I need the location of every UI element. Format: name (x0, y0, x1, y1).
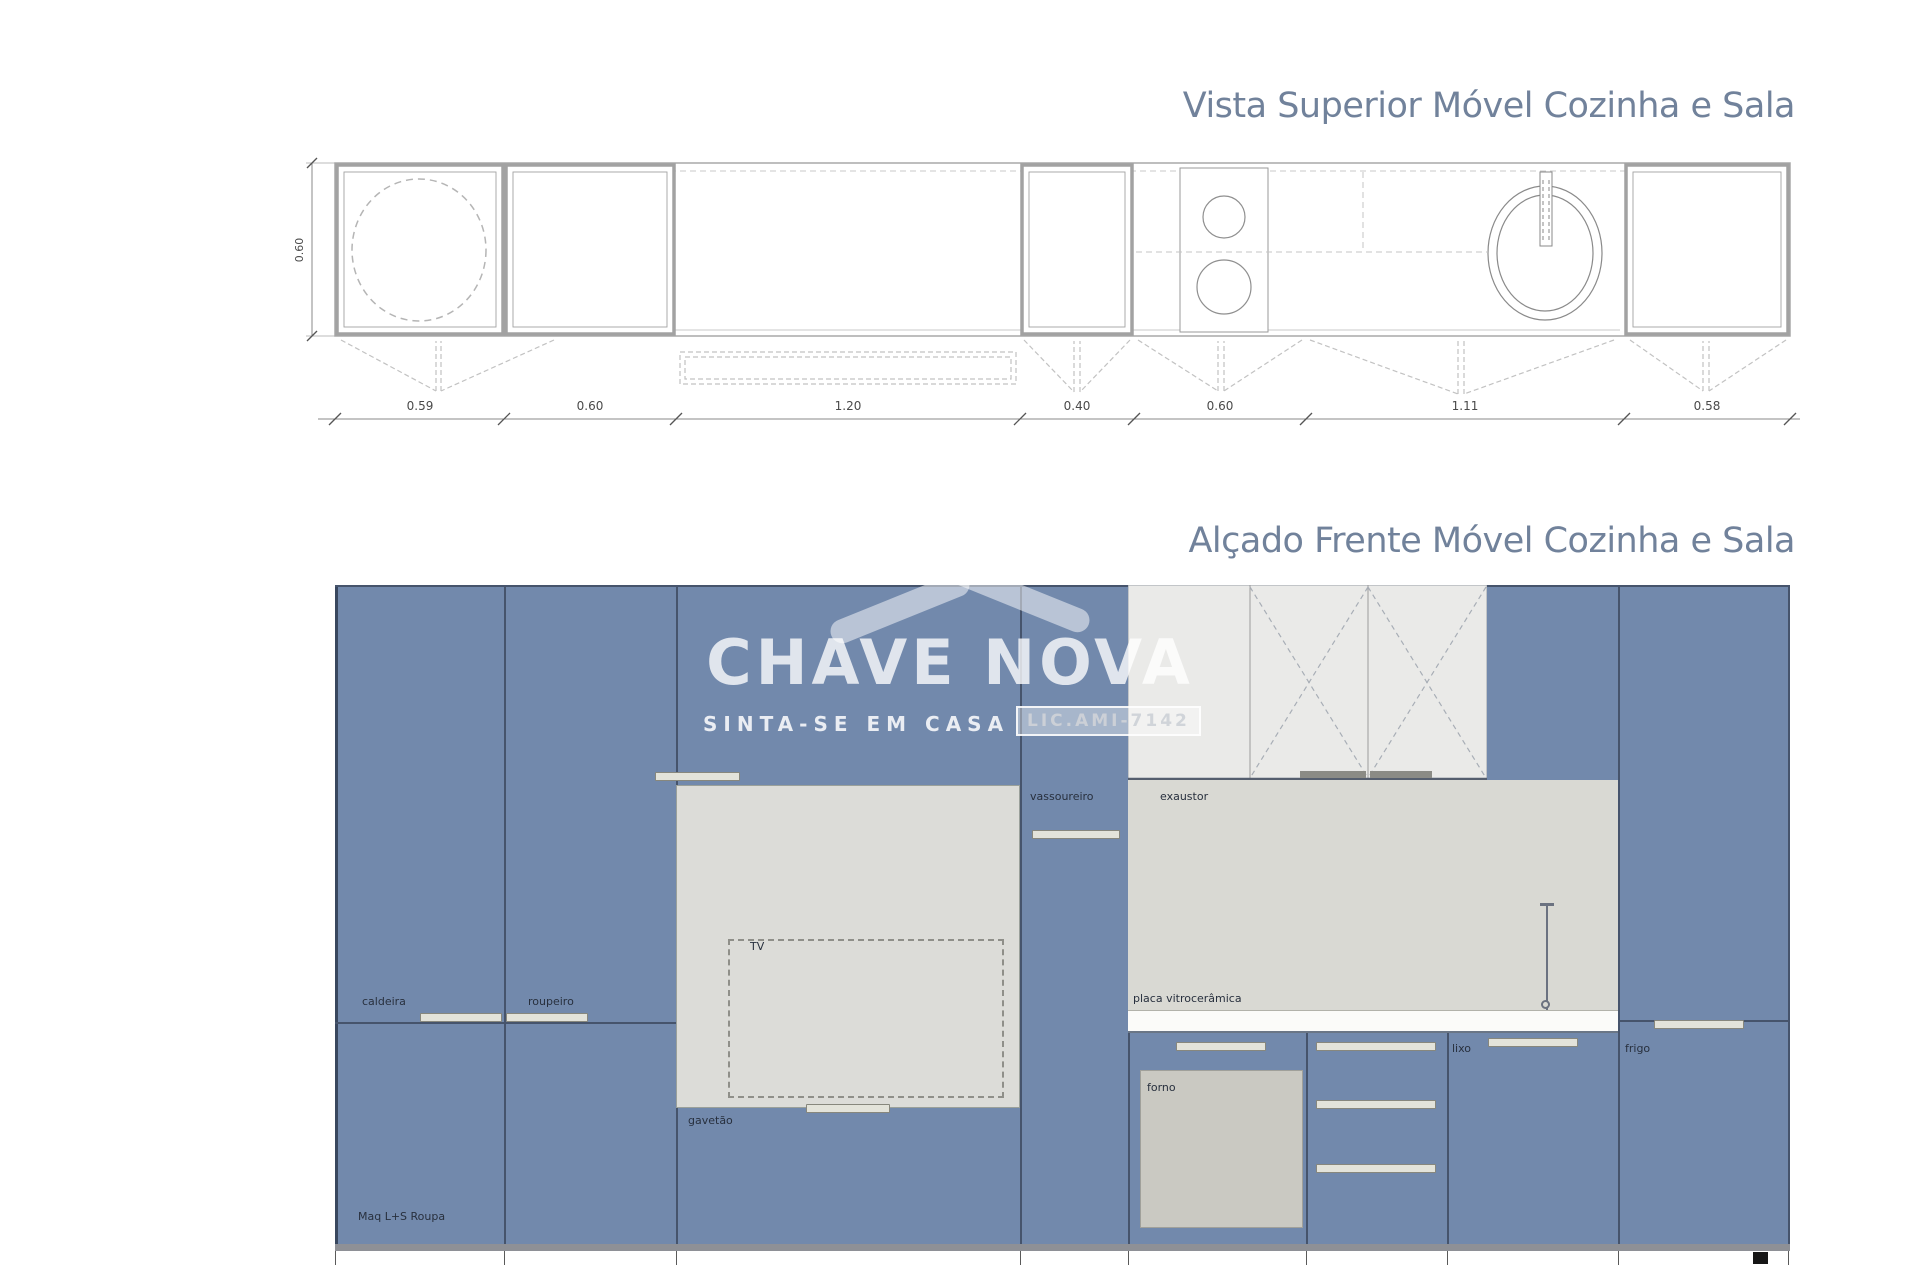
door-swing-symbols (341, 340, 1786, 394)
label-placa: placa vitrocerâmica (1133, 992, 1242, 1005)
tv-niche-panel (676, 785, 1020, 1108)
dimension-label: 0.58 (1694, 399, 1721, 413)
label-vassoureiro: vassoureiro (1030, 790, 1094, 803)
upper-door-handle (1370, 771, 1432, 778)
upper-door-handle (1300, 771, 1366, 778)
label-tv: TV (750, 940, 764, 953)
label-maq-roupa: Maq L+S Roupa (358, 1210, 445, 1223)
door-handle (806, 1104, 890, 1113)
label-gavetao: gavetão (688, 1114, 733, 1127)
top-view-title: Vista Superior Móvel Cozinha e Sala (1150, 86, 1795, 126)
dimension-label: 1.11 (1452, 399, 1479, 413)
height-dimension-label: 0.60 (293, 238, 306, 263)
dimension-label: 1.20 (835, 399, 862, 413)
upper-cabinets (1128, 585, 1487, 781)
dimension-label: 0.60 (577, 399, 604, 413)
drawer-handle (1316, 1042, 1436, 1051)
door-handle (655, 772, 740, 781)
countertop (1128, 1010, 1618, 1033)
column-divider (1306, 1033, 1308, 1244)
column-divider (504, 585, 506, 1244)
cabinet-edge-right (1788, 585, 1790, 1244)
plinth-band (335, 1244, 1790, 1251)
dimension-label: 0.60 (1207, 399, 1234, 413)
tv-outline (728, 939, 1004, 1098)
door-divider (335, 1022, 676, 1024)
label-exaustor: exaustor (1160, 790, 1208, 803)
label-forno: forno (1147, 1081, 1176, 1094)
drawer-handle (1316, 1100, 1436, 1109)
label-frigo: frigo (1625, 1042, 1650, 1055)
column-divider (1020, 585, 1022, 1244)
label-lixo: lixo (1452, 1042, 1471, 1055)
elevation-drawing: caldeira roupeiro TV gavetão Maq L+S Rou… (335, 585, 1790, 1244)
dimension-label: 0.59 (407, 399, 434, 413)
door-handle (1488, 1038, 1578, 1047)
door-handle (1654, 1020, 1744, 1029)
top-view-drawing: 0.60 (260, 140, 1840, 450)
faucet-icon (1541, 1000, 1550, 1009)
column-divider (1447, 1033, 1449, 1244)
door-handle (420, 1013, 502, 1022)
hob-symbol (1180, 168, 1268, 332)
backsplash-panel (1128, 780, 1618, 1010)
cabinet-edge-left (335, 585, 338, 1244)
label-roupeiro: roupeiro (528, 995, 574, 1008)
corner-marker (1753, 1252, 1768, 1264)
label-caldeira: caldeira (362, 995, 406, 1008)
dimension-label: 0.40 (1064, 399, 1091, 413)
drawer-handle (1176, 1042, 1266, 1051)
plinth (335, 1251, 1790, 1265)
faucet-icon (1546, 905, 1548, 1010)
elevation-title: Alçado Frente Móvel Cozinha e Sala (1150, 521, 1795, 561)
door-handle (506, 1013, 588, 1022)
drawer-handle (1316, 1164, 1436, 1173)
column-divider (1618, 585, 1620, 1244)
door-handle (1032, 830, 1120, 839)
faucet-icon (1540, 903, 1554, 906)
cabinet-edge-top (335, 585, 1790, 587)
